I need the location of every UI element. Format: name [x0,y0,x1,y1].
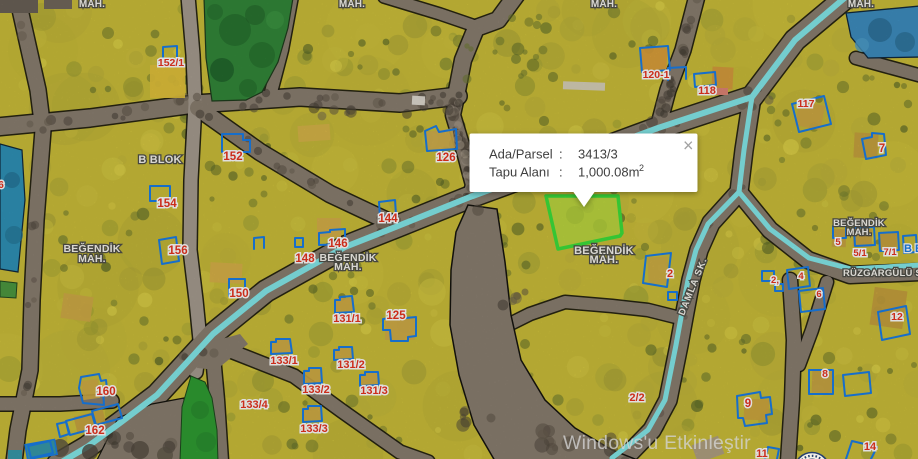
svg-text:3413/3: 3413/3 [578,147,618,162]
svg-text:2: 2 [639,163,644,173]
svg-text::: : [559,165,563,180]
svg-text:Tapu Alanı: Tapu Alanı [489,165,550,180]
svg-text:Windows'u Etkinleştir: Windows'u Etkinleştir [563,432,751,454]
svg-text:Ada/Parsel: Ada/Parsel [489,147,553,162]
svg-text:1,000.08m: 1,000.08m [578,165,639,180]
svg-text:×: × [683,136,694,156]
svg-text::: : [559,147,563,162]
